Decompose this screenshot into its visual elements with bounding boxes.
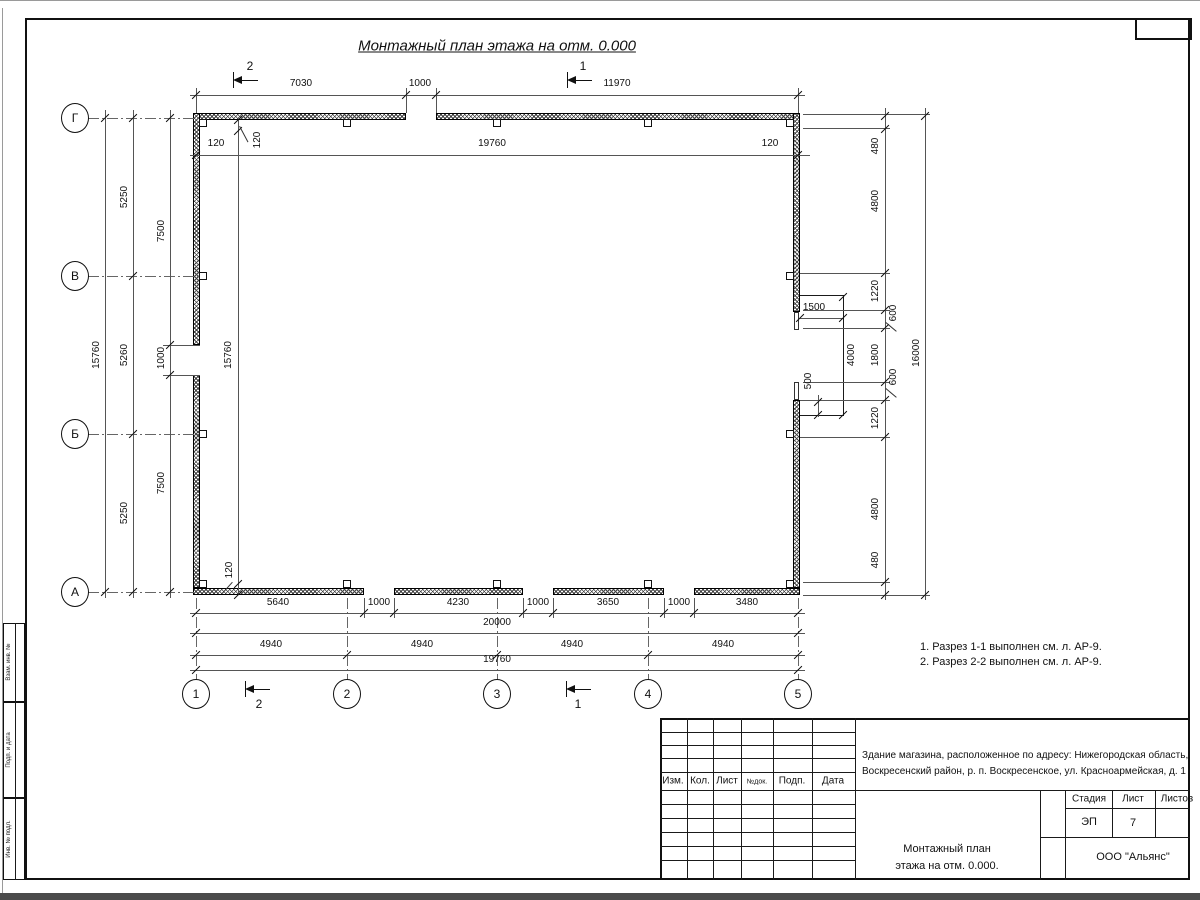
side-stamp-divider — [15, 623, 16, 880]
column — [786, 580, 794, 588]
dim-text: 15760 — [224, 341, 234, 369]
section-mark-2-bottom — [254, 689, 270, 690]
wall-left-upper — [193, 113, 200, 345]
dim-text: 1220 — [871, 280, 881, 302]
dim-text: 7500 — [157, 472, 167, 494]
axis-circle-1: 1 — [182, 679, 210, 709]
axis-circle-g: Г — [61, 103, 89, 133]
dim-text: 5260 — [120, 344, 130, 366]
extension-line — [664, 598, 665, 618]
dim-text: 600 — [889, 305, 899, 322]
side-stamp-label: Взам. инв. № — [6, 643, 12, 680]
dim-text: 4940 — [561, 640, 583, 650]
wall-bottom-2 — [394, 588, 523, 595]
axis-label: Г — [72, 111, 79, 125]
dim-line-left-spans — [133, 110, 134, 598]
column — [493, 580, 501, 588]
dim-text: 1220 — [871, 407, 881, 429]
titleblock-line — [1155, 790, 1156, 837]
extension-line — [364, 598, 365, 618]
titleblock-line — [660, 772, 855, 773]
titleblock-line — [1040, 790, 1041, 880]
dim-text: 1000 — [668, 598, 690, 608]
axis-line-3 — [497, 598, 498, 681]
axis-label: Б — [71, 427, 79, 441]
column — [644, 119, 652, 127]
dim-line-right-total — [925, 108, 926, 600]
section-arrow-icon — [233, 76, 242, 84]
dim-text: 120 — [208, 139, 225, 149]
section-arrow-icon — [567, 76, 576, 84]
dim-text: 120 — [225, 562, 235, 579]
section-arrow-icon — [566, 685, 575, 693]
wall-right-upper — [793, 113, 800, 312]
drawing-sheet: Взам. инв. № Подп. и дата Инв. № подл. М… — [0, 0, 1200, 900]
titleblock-line — [660, 846, 855, 847]
axis-label: 3 — [494, 687, 501, 701]
dim-text: 19760 — [483, 655, 511, 665]
dim-text: 20000 — [483, 618, 511, 628]
rev-col-header: №док. — [747, 779, 768, 786]
axis-circle-a: А — [61, 577, 89, 607]
axis-circle-5: 5 — [784, 679, 812, 709]
section-label-2: 2 — [256, 697, 263, 711]
titleblock-line — [660, 790, 855, 791]
rev-col-header: Лист — [716, 776, 738, 787]
doc-name-line1: Монтажный план — [903, 843, 991, 855]
sheet-number: 7 — [1130, 817, 1136, 829]
axis-label: 2 — [344, 687, 351, 701]
doc-name-line2: этажа на отм. 0.000. — [895, 860, 998, 872]
dim-text: 4000 — [847, 344, 857, 366]
dim-text: 1000 — [527, 598, 549, 608]
dim-text: 4800 — [871, 190, 881, 212]
dock-outline — [800, 295, 843, 296]
dim-line-left-openings — [170, 110, 171, 598]
titleblock-line — [855, 718, 856, 880]
sheet-bottom-shadow — [0, 893, 1200, 900]
sheet-edge-top — [0, 0, 1200, 1]
axis-circle-2: 2 — [333, 679, 361, 709]
dim-line-bottom-openings — [190, 613, 805, 614]
axis-circle-b: Б — [61, 419, 89, 449]
dim-text: 4230 — [447, 598, 469, 608]
titleblock-line — [660, 860, 855, 861]
axis-label: 4 — [645, 687, 652, 701]
rev-col-header: Кол. — [690, 776, 710, 787]
dim-text: 120 — [762, 139, 779, 149]
dim-line-left-inner — [238, 120, 239, 595]
titleblock-line — [660, 804, 855, 805]
stage-label: Стадия — [1072, 794, 1106, 805]
side-stamp-label: Инв. № подл. — [6, 820, 12, 857]
column — [493, 119, 501, 127]
project-description-line2: Воскресенский район, р. п. Воскресенское… — [862, 766, 1198, 778]
column — [199, 119, 207, 127]
dock-outline — [800, 415, 843, 416]
section-label-1: 1 — [575, 697, 582, 711]
extension-line — [800, 437, 890, 438]
titleblock-line — [741, 718, 742, 880]
wall-top-right — [436, 113, 800, 120]
column — [786, 272, 794, 280]
dock-outline — [843, 295, 844, 416]
section-mark-2-top — [242, 80, 258, 81]
dim-text: 7030 — [290, 79, 312, 89]
column — [199, 272, 207, 280]
titleblock-line — [1065, 808, 1190, 809]
dim-line-bottom-total — [190, 633, 805, 634]
rev-col-header: Изм. — [662, 776, 683, 787]
column — [343, 119, 351, 127]
titleblock-line — [773, 718, 774, 880]
titleblock-line — [812, 718, 813, 880]
titleblock-line — [660, 758, 855, 759]
extension-line — [803, 114, 930, 115]
axis-circle-3: 3 — [483, 679, 511, 709]
section-arrow-icon — [245, 685, 254, 693]
titleblock-line — [660, 745, 855, 746]
dim-text: 480 — [871, 138, 881, 155]
section-mark-1-bottom — [575, 689, 591, 690]
dim-text: 600 — [889, 369, 899, 386]
extension-line — [800, 400, 826, 401]
dim-text: 1000 — [368, 598, 390, 608]
extension-line — [803, 595, 930, 596]
column — [786, 430, 794, 438]
extension-line — [803, 382, 890, 383]
rev-col-header: Дата — [822, 776, 844, 787]
column — [199, 580, 207, 588]
axis-label: 5 — [795, 687, 802, 701]
dim-line-top — [190, 95, 805, 96]
axis-circle-4: 4 — [634, 679, 662, 709]
dim-text: 1800 — [871, 344, 881, 366]
section-mark-1-top — [576, 80, 592, 81]
dim-text: 15760 — [92, 341, 102, 369]
axis-label: А — [71, 585, 79, 599]
titleblock-line — [713, 718, 714, 880]
dim-text: 1000 — [157, 347, 167, 369]
dim-text: 1500 — [803, 303, 825, 313]
stage-value: ЭП — [1081, 816, 1097, 828]
section-label-2: 2 — [247, 59, 254, 73]
side-stamp-label: Подп. и дата — [6, 732, 12, 767]
dim-text: 120 — [253, 132, 263, 149]
titleblock-line — [687, 718, 688, 880]
titleblock-line — [1112, 790, 1113, 837]
wall-right-lower — [793, 400, 800, 588]
axis-circle-v: В — [61, 261, 89, 291]
dim-text: 5250 — [120, 186, 130, 208]
extension-line — [803, 328, 890, 329]
wall-bottom-3 — [553, 588, 664, 595]
wall-top-left — [193, 113, 406, 120]
dim-text: 16000 — [912, 339, 922, 367]
dim-text: 5640 — [267, 598, 289, 608]
section-label-1: 1 — [580, 59, 587, 73]
titleblock-line — [1040, 837, 1190, 838]
extension-line — [694, 598, 695, 618]
axis-label: В — [71, 269, 79, 283]
dim-text: 4940 — [411, 640, 433, 650]
titleblock-line — [660, 832, 855, 833]
dim-text: 1000 — [409, 79, 431, 89]
wall-left-lower — [193, 375, 200, 588]
dim-text: 5250 — [120, 502, 130, 524]
titleblock-line — [855, 790, 1190, 791]
column — [644, 580, 652, 588]
dim-line-bottom-inner — [190, 670, 805, 671]
wall-bottom-1 — [193, 588, 364, 595]
plan-title: Монтажный план этажа на отм. 0.000 — [358, 39, 636, 54]
organization-name: ООО "Альянс" — [1096, 851, 1170, 863]
project-description-line1: Здание магазина, расположенное по адресу… — [862, 750, 1198, 762]
titleblock-line — [660, 818, 855, 819]
dim-text: 3480 — [736, 598, 758, 608]
titleblock-line — [660, 732, 855, 733]
sheets-label: Листов — [1161, 794, 1194, 805]
column — [343, 580, 351, 588]
dim-text: 19760 — [478, 139, 506, 149]
dim-line-left-total — [105, 110, 106, 598]
top-right-stamp-box — [1135, 18, 1192, 40]
dim-text: 11970 — [603, 79, 630, 89]
extension-line — [803, 128, 890, 129]
dim-line-top-inner — [190, 155, 810, 156]
extension-line — [523, 598, 524, 618]
dim-text: 480 — [871, 552, 881, 569]
dim-text: 4940 — [712, 640, 734, 650]
axis-line-4 — [648, 598, 649, 681]
dim-text: 4800 — [871, 498, 881, 520]
note-line: 2. Разрез 2-2 выполнен см. л. АР-9. — [920, 656, 1102, 669]
titleblock-line — [1065, 790, 1066, 880]
rev-col-header: Подп. — [779, 776, 806, 787]
dim-line-dock-width — [800, 318, 843, 319]
extension-line — [394, 598, 395, 618]
wall-bottom-4 — [694, 588, 800, 595]
dim-line-right-chain — [885, 108, 886, 600]
axis-label: 1 — [193, 687, 200, 701]
dim-text: 7500 — [157, 220, 167, 242]
window-right-lower — [794, 382, 799, 400]
extension-line — [553, 598, 554, 618]
note-line: 1. Разрез 1-1 выполнен см. л. АР-9. — [920, 641, 1102, 654]
extension-line — [800, 273, 890, 274]
dim-text: 500 — [804, 373, 814, 390]
axis-line-2 — [347, 598, 348, 681]
dim-text: 4940 — [260, 640, 282, 650]
extension-line — [803, 582, 890, 583]
column — [786, 119, 794, 127]
dim-text: 3650 — [597, 598, 619, 608]
sheet-label: Лист — [1122, 794, 1144, 805]
column — [199, 430, 207, 438]
